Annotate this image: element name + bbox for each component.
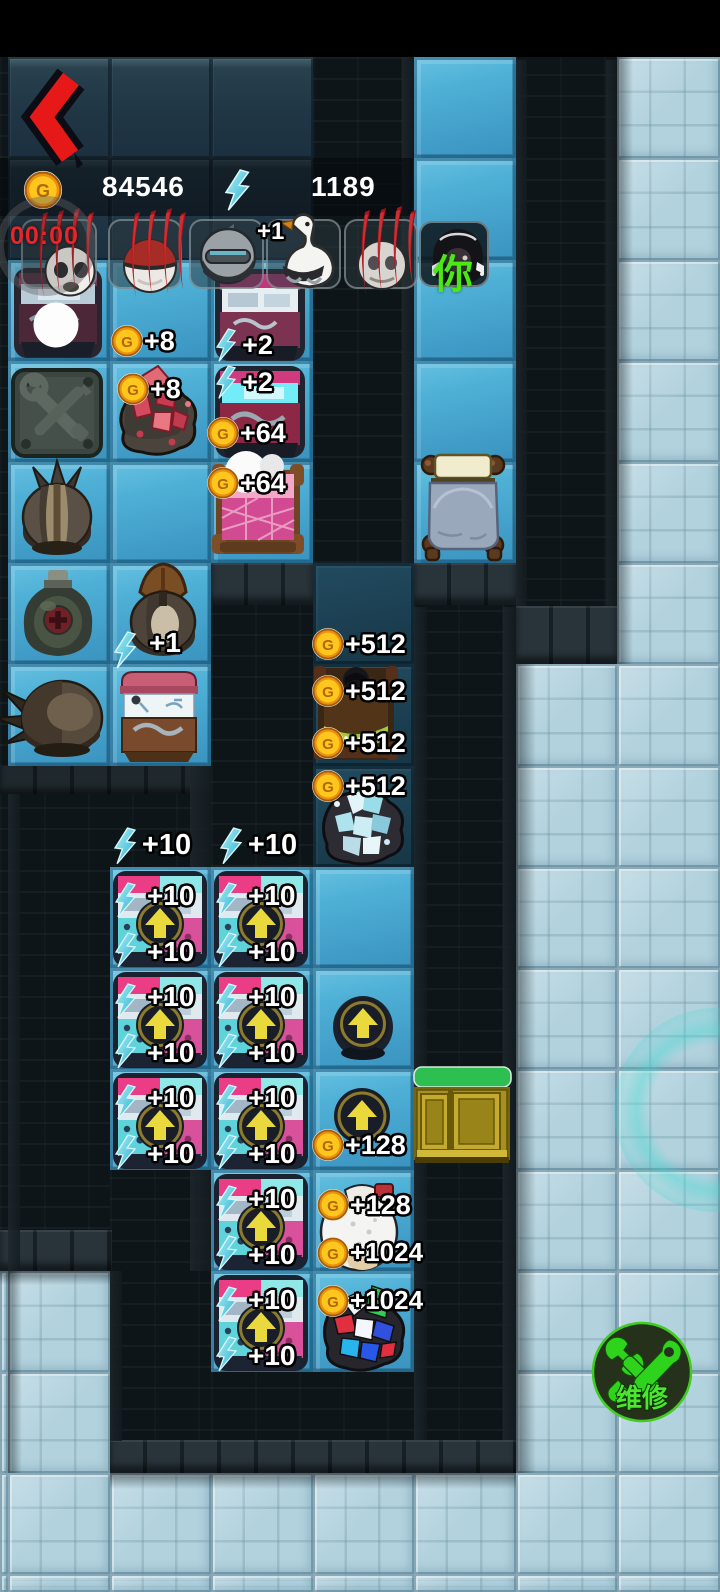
- svg-text:维修: 维修: [616, 1383, 669, 1413]
